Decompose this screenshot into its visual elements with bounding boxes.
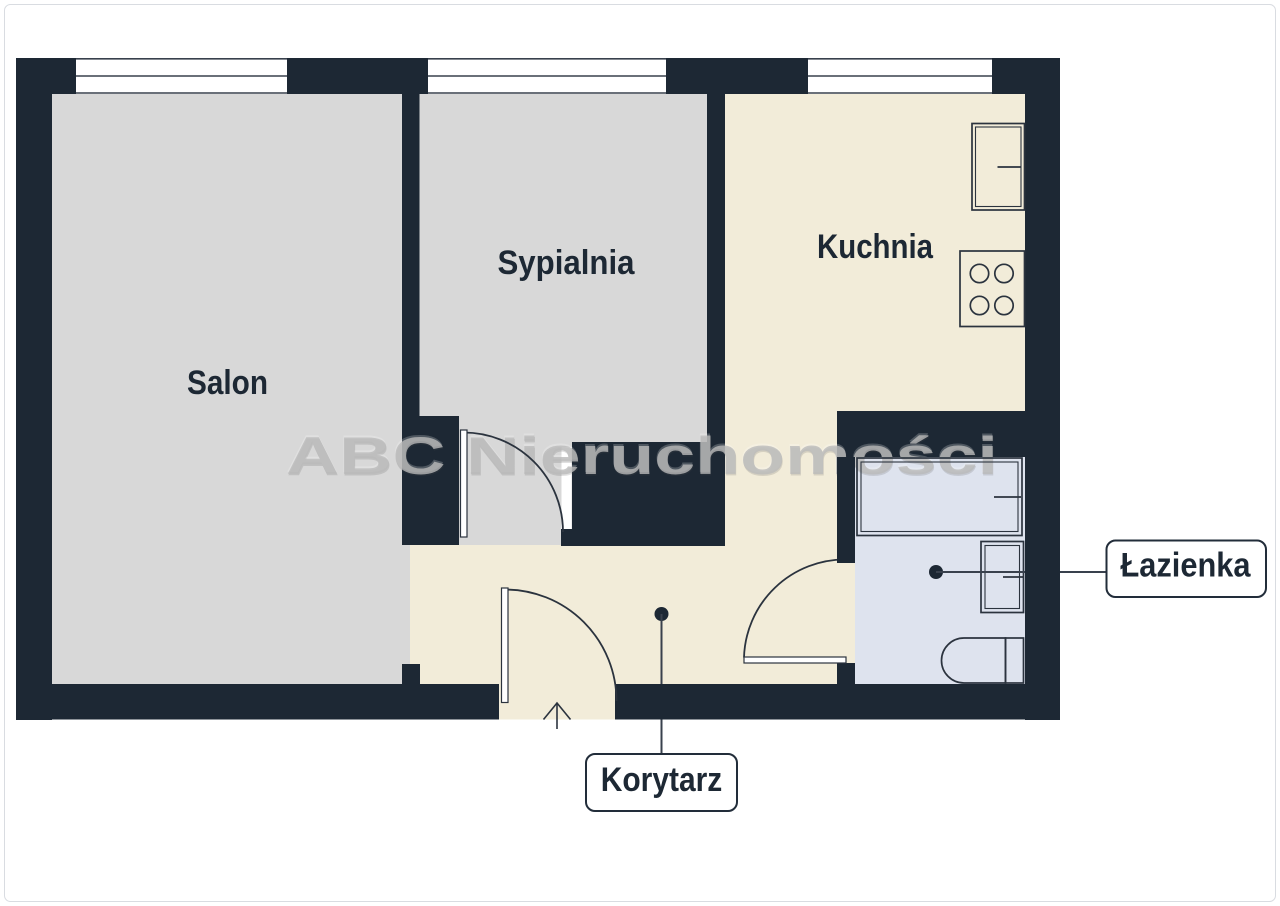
svg-text:Salon: Salon bbox=[187, 364, 268, 402]
svg-text:ABC Nieruchomości: ABC Nieruchomości bbox=[286, 427, 998, 486]
svg-text:Korytarz: Korytarz bbox=[601, 761, 723, 799]
svg-text:Kuchnia: Kuchnia bbox=[817, 228, 934, 266]
svg-text:Łazienka: Łazienka bbox=[1121, 547, 1252, 585]
svg-text:Sypialnia: Sypialnia bbox=[498, 244, 636, 282]
